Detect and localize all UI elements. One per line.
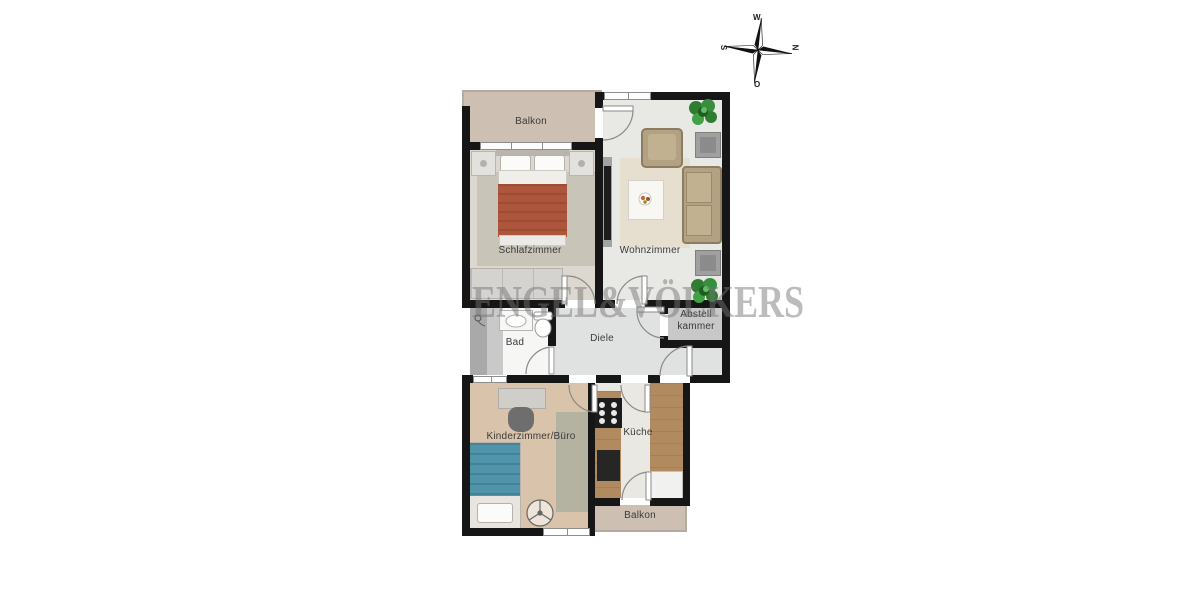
floorplan-page: W N O S Balkon Schlafzimmer Wohnzimmer B… <box>0 0 1200 600</box>
wall-segment <box>588 383 595 528</box>
compass-label-south: S <box>719 45 728 50</box>
desk-chair <box>508 407 534 432</box>
room-label-schlafzimmer: Schlafzimmer <box>470 245 590 256</box>
room-label-wohnzimmer: Wohnzimmer <box>590 245 710 256</box>
kitchen-appliance-white <box>650 471 683 499</box>
wall-segment <box>690 375 730 383</box>
balcony-railing <box>462 90 602 92</box>
window <box>480 142 572 150</box>
room-label-kueche: Küche <box>578 427 698 438</box>
nightstand-right-knob <box>578 160 585 167</box>
balcony-railing <box>592 530 687 532</box>
coffee-table <box>628 180 664 220</box>
wall-segment <box>648 375 660 383</box>
room-label-balkon-bottom: Balkon <box>580 510 700 521</box>
stove-cooktop <box>595 398 622 428</box>
wall-segment <box>660 340 730 348</box>
wall-segment <box>462 375 473 383</box>
wall-segment <box>596 375 621 383</box>
kitchen-appliance-black <box>597 450 620 481</box>
room-label-balkon-top: Balkon <box>471 116 591 127</box>
brand-watermark: ENGEL&VÖLKERS <box>472 276 728 328</box>
window <box>604 92 651 100</box>
compass-label-west: W <box>753 13 761 22</box>
wall-segment <box>462 145 470 308</box>
window <box>543 528 590 536</box>
side-table-top-inner <box>700 137 716 153</box>
wall-segment <box>650 498 690 506</box>
compass-label-north: N <box>790 45 799 51</box>
room-diele-entry <box>660 348 722 375</box>
sofa-cushion-2 <box>686 205 712 236</box>
door-leaf <box>549 347 554 374</box>
bed-blanket <box>498 184 567 237</box>
kids-bed-pillow <box>477 503 513 523</box>
nightstand-left-knob <box>480 160 487 167</box>
wall-segment <box>507 375 569 383</box>
wall-segment <box>683 383 690 505</box>
compass-label-east: O <box>754 80 760 89</box>
room-label-kinderzimmer: Kinderzimmer/Büro <box>471 431 591 442</box>
desk <box>498 388 546 409</box>
room-label-diele: Diele <box>542 333 662 344</box>
compass-rose-icon <box>721 15 795 87</box>
wall-segment <box>588 498 620 506</box>
kids-bed-blanket <box>470 443 520 496</box>
wall-segment <box>462 383 470 536</box>
window <box>473 376 507 383</box>
armchair-cushion <box>648 134 676 160</box>
tv <box>604 166 611 240</box>
sofa-cushion-1 <box>686 172 712 203</box>
side-table-bottom-inner <box>700 255 716 271</box>
